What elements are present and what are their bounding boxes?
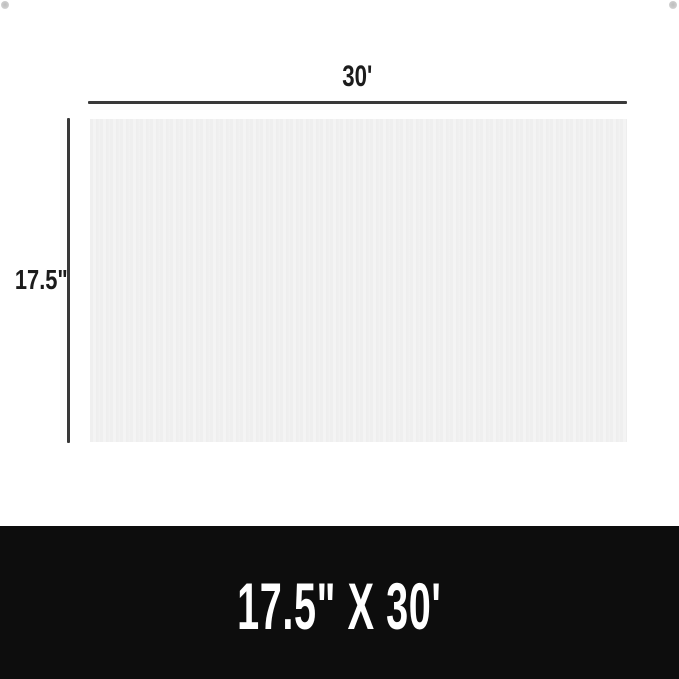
width-dimension-label: 30' — [88, 62, 627, 92]
product-dimension-image: 30' 17.5" 17.5" X 30' — [0, 0, 679, 679]
size-banner-text: 17.5" X 30' — [237, 573, 441, 639]
product-sheet — [90, 119, 627, 442]
width-dimension-line — [88, 101, 627, 104]
height-dimension-label: 17.5" — [0, 266, 58, 294]
corner-dot-icon — [669, 1, 677, 9]
width-dimension-label-text: 30' — [343, 62, 373, 92]
corner-dot-icon — [1, 1, 9, 9]
size-banner: 17.5" X 30' — [0, 526, 679, 679]
height-dimension-label-text: 17.5" — [15, 266, 68, 294]
